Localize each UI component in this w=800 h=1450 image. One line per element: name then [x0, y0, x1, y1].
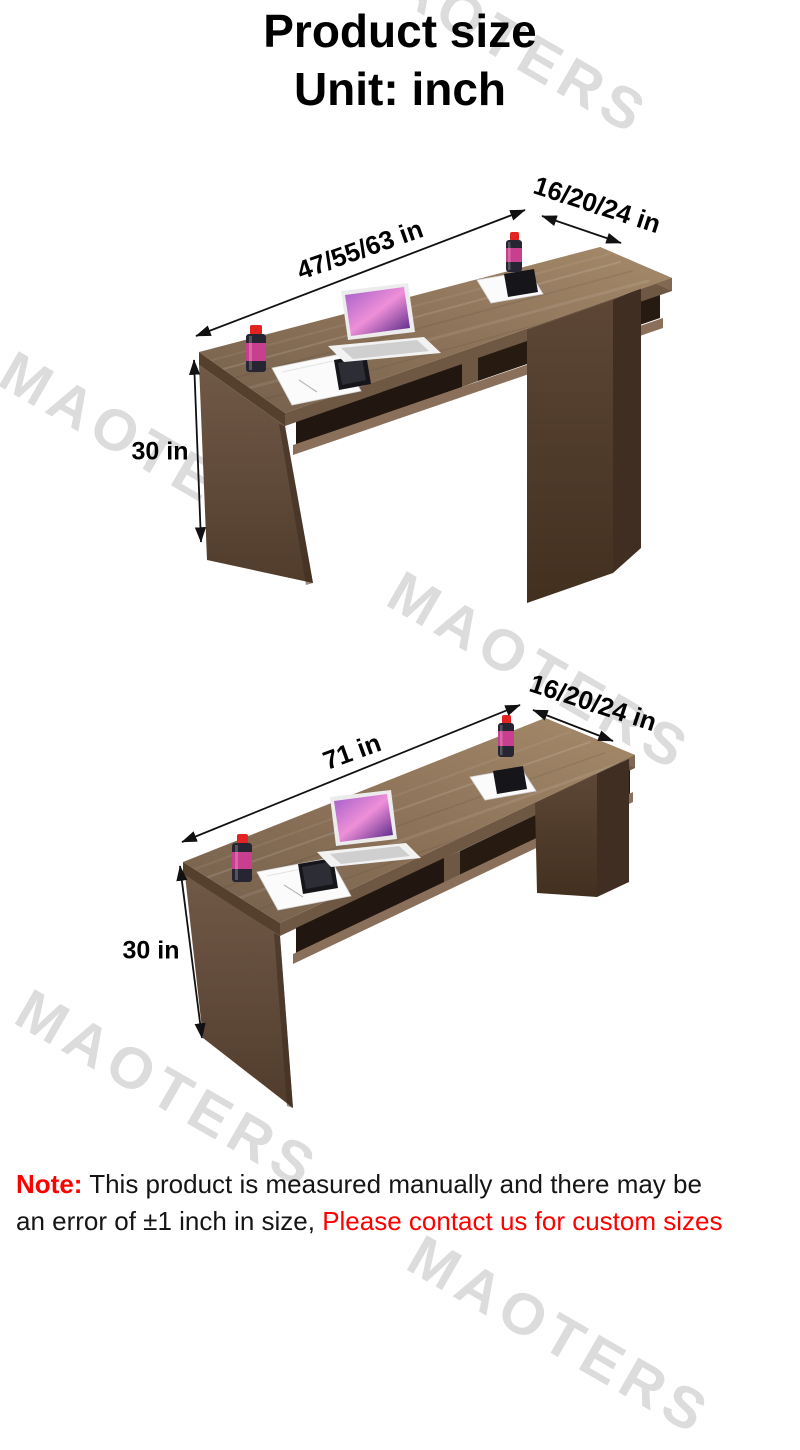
note-contact-text: Please contact us for custom sizes [322, 1206, 722, 1236]
measurement-note: Note: This product is measured manually … [16, 1166, 800, 1240]
page-title-line1: Product size [0, 2, 800, 60]
bottle [246, 325, 266, 372]
bottle [506, 232, 522, 272]
product-size-illustration [0, 0, 800, 1251]
desk-illustration-2 [180, 705, 635, 1108]
height-dimension-label-desk1: 30 in [132, 438, 189, 467]
note-prefix: Note: [16, 1169, 82, 1199]
note-line2: an error of ±1 inch in size, Please cont… [16, 1203, 800, 1240]
page-title: Product size Unit: inch [0, 2, 800, 118]
note-line1: Note: This product is measured manually … [16, 1166, 800, 1203]
note-line1-text: This product is measured manually and th… [89, 1169, 702, 1199]
watermark-text: MAOTERS [397, 1222, 724, 1450]
height-dimension-label-desk2: 30 in [123, 937, 180, 966]
note-line2-text: an error of ±1 inch in size, [16, 1206, 322, 1236]
bottle [498, 715, 514, 757]
desk-illustration-1 [194, 210, 672, 603]
page-title-line2: Unit: inch [0, 60, 800, 118]
